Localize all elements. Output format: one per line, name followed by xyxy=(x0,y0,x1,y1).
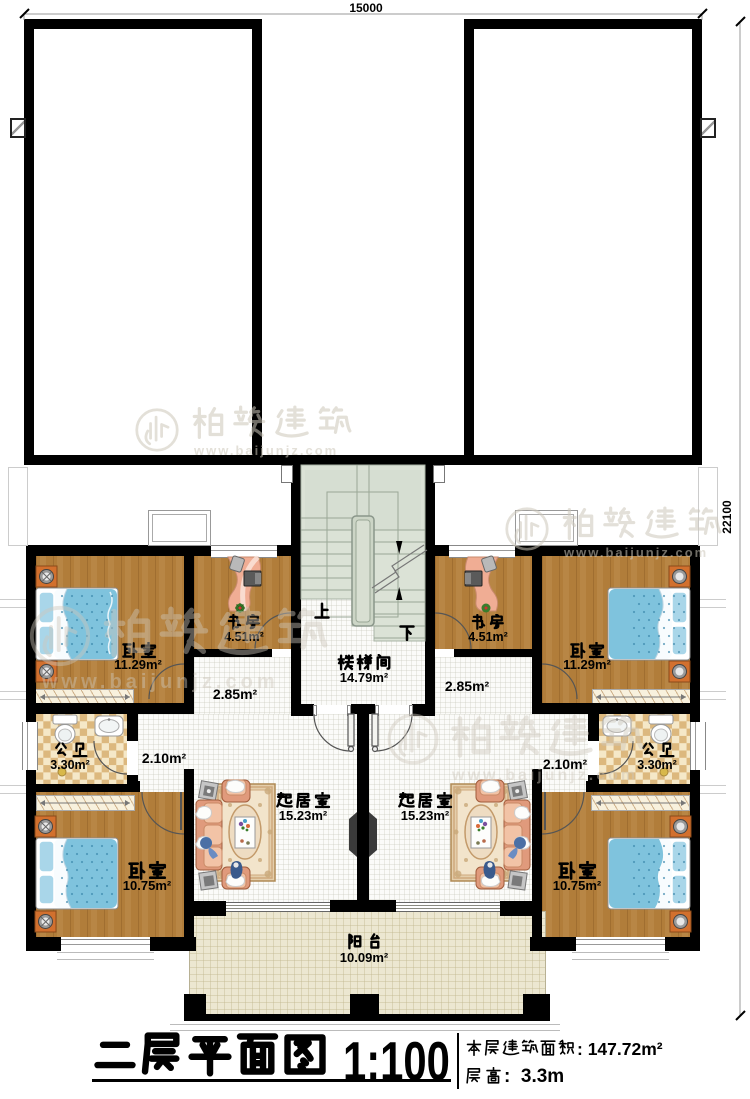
svg-text:www.baijunjz.com: www.baijunjz.com xyxy=(563,545,708,560)
svg-text:www.baijunjz.com: www.baijunjz.com xyxy=(193,443,338,458)
svg-text:www.baijunjz.com: www.baijunjz.com xyxy=(451,767,638,784)
svg-text:www.baijunjz.com: www.baijunjz.com xyxy=(41,671,279,693)
